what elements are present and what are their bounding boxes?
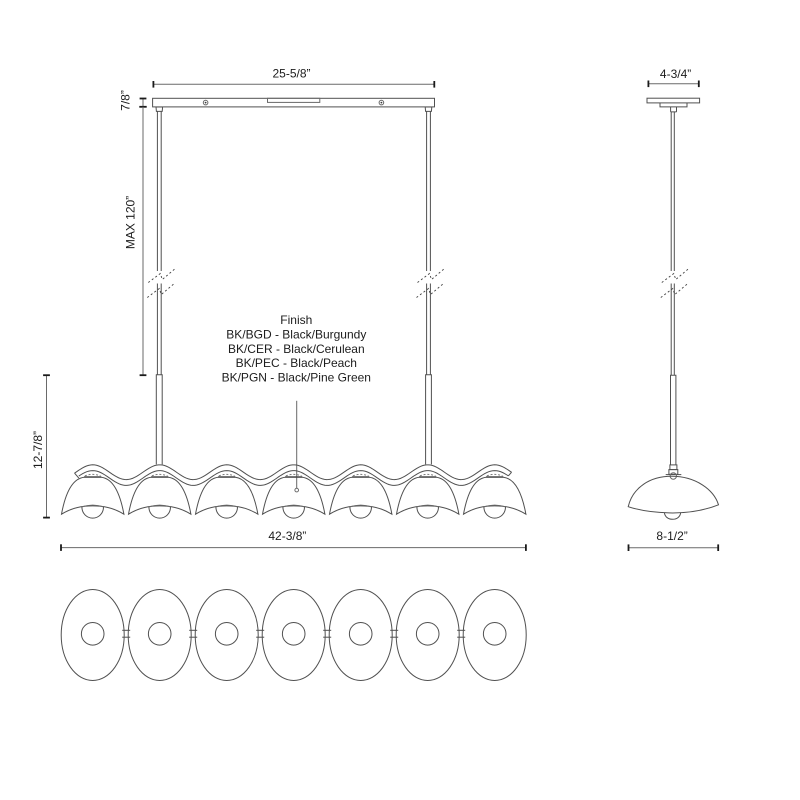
svg-text:42-3/8”: 42-3/8” [268,529,306,543]
svg-text:BK/BGD - Black/Burgundy: BK/BGD - Black/Burgundy [226,328,366,342]
svg-text:8-1/2”: 8-1/2” [656,529,687,543]
svg-text:MAX 120”: MAX 120” [123,196,137,249]
svg-text:BK/CER - Black/Cerulean: BK/CER - Black/Cerulean [228,342,365,356]
svg-text:BK/PEC - Black/Peach: BK/PEC - Black/Peach [236,356,357,370]
svg-text:4-3/4”: 4-3/4” [660,67,691,81]
svg-text:Finish: Finish [280,313,312,327]
svg-text:BK/PGN - Black/Pine Green: BK/PGN - Black/Pine Green [222,371,371,385]
svg-text:7/8”: 7/8” [119,90,133,111]
svg-text:25-5/8”: 25-5/8” [272,67,310,81]
svg-text:12-7/8”: 12-7/8” [31,431,45,469]
